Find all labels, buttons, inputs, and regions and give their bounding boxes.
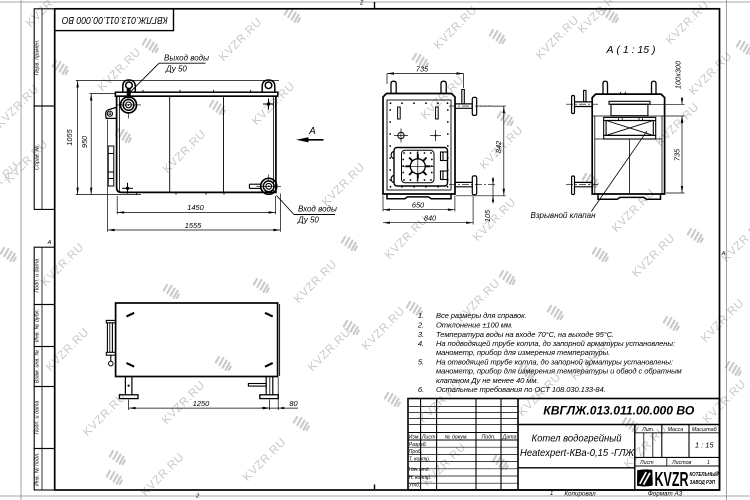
- svg-text:100х300: 100х300: [673, 60, 682, 89]
- svg-text:Справ. №: Справ. №: [35, 145, 41, 170]
- svg-text:KVZR: KVZR: [655, 468, 689, 491]
- svg-text:клапаном Ду не менее 40 мм.: клапаном Ду не менее 40 мм.: [436, 376, 539, 385]
- svg-text:840: 840: [424, 214, 437, 223]
- svg-text:4.: 4.: [418, 339, 424, 348]
- svg-text:На отводящей трубе котла, до з: На отводящей трубе котла, до запорной ар…: [436, 357, 673, 366]
- svg-text:Листов: Листов: [671, 460, 692, 466]
- svg-text:КОТЕЛЬНЫЙ: КОТЕЛЬНЫЙ: [690, 470, 720, 478]
- svg-text:Ду 50: Ду 50: [297, 216, 319, 225]
- svg-text:А ( 1 : 15 ): А ( 1 : 15 ): [605, 44, 655, 56]
- svg-text:735: 735: [416, 64, 429, 73]
- svg-text:Копировал: Копировал: [564, 490, 596, 497]
- svg-text:Утб.: Утб.: [409, 483, 421, 489]
- svg-text:Масштаб: Масштаб: [692, 427, 718, 433]
- svg-text:Подп.: Подп.: [481, 435, 495, 441]
- svg-text:3.: 3.: [418, 330, 424, 339]
- svg-text:Т. контр.: Т. контр.: [409, 457, 431, 463]
- svg-text:КВГЛЖ.013.011.00.000 ВО: КВГЛЖ.013.011.00.000 ВО: [62, 14, 168, 25]
- svg-text:105: 105: [483, 209, 492, 222]
- svg-text:Температура воды на входе 70°С: Температура воды на входе 70°С, на выход…: [436, 330, 614, 339]
- svg-text:Дата: Дата: [502, 435, 517, 441]
- svg-text:Формат А3: Формат А3: [648, 490, 683, 497]
- svg-text:Инв. № дубл.: Инв. № дубл.: [35, 309, 41, 342]
- svg-text:Лит.: Лит.: [641, 427, 654, 433]
- svg-text:Перв. примен.: Перв. примен.: [35, 40, 41, 76]
- svg-text:Лист: Лист: [421, 435, 436, 441]
- svg-text:№ докум.: № докум.: [445, 435, 468, 441]
- svg-text:Изм.: Изм.: [409, 435, 420, 441]
- svg-text:735: 735: [672, 148, 681, 161]
- svg-text:Разраб.: Разраб.: [409, 442, 427, 448]
- svg-text:ЗАВОД РЭП: ЗАВОД РЭП: [690, 480, 716, 486]
- svg-text:КВГЛЖ.013.011.00.000 ВО: КВГЛЖ.013.011.00.000 ВО: [543, 406, 694, 418]
- svg-text:2: 2: [359, 1, 364, 7]
- svg-text:1 : 15: 1 : 15: [695, 441, 714, 450]
- svg-text:А: А: [721, 251, 726, 257]
- svg-text:950: 950: [80, 135, 89, 148]
- svg-text:6.: 6.: [418, 385, 424, 394]
- svg-text:А: А: [47, 240, 52, 246]
- svg-text:1055: 1055: [65, 128, 74, 145]
- svg-text:манометр, прибор для измерения: манометр, прибор для измерения температу…: [436, 367, 683, 376]
- svg-text:Подп. и дата: Подп. и дата: [35, 401, 41, 435]
- svg-text:А: А: [308, 126, 316, 137]
- svg-text:Все размеры для справок.: Все размеры для справок.: [436, 311, 527, 320]
- svg-text:Масса: Масса: [668, 427, 684, 433]
- svg-text:1250: 1250: [193, 399, 210, 408]
- svg-text:80: 80: [289, 399, 298, 408]
- svg-text:1.: 1.: [418, 311, 424, 320]
- svg-text:842: 842: [494, 141, 503, 153]
- svg-text:Проб.: Проб.: [409, 449, 422, 455]
- svg-text:Взрывной клапан: Взрывной клапан: [531, 211, 597, 220]
- svg-text:650: 650: [412, 201, 425, 210]
- svg-text:5.: 5.: [418, 357, 424, 366]
- svg-text:Лист: Лист: [639, 460, 654, 466]
- svg-text:Выход воды: Выход воды: [164, 54, 209, 63]
- svg-text:1555: 1555: [185, 221, 202, 230]
- svg-text:Взам. инв. №: Взам. инв. №: [35, 350, 41, 384]
- svg-text:Ду 50: Ду 50: [165, 65, 187, 74]
- svg-text:Котел водогрейный: Котел водогрейный: [532, 433, 622, 445]
- svg-text:Вход воды: Вход воды: [298, 205, 337, 214]
- svg-text:2.: 2.: [417, 321, 424, 330]
- svg-text:1450: 1450: [187, 203, 204, 212]
- svg-text:Остальные требования по ОСТ 10: Остальные требования по ОСТ 108.030.133-…: [436, 385, 606, 394]
- svg-text:1: 1: [550, 491, 553, 497]
- svg-text:Heatexpert-КВа-0,15 -ГЛЖ: Heatexpert-КВа-0,15 -ГЛЖ: [520, 447, 635, 459]
- svg-text:Н. контр.: Н. контр.: [409, 475, 432, 481]
- svg-text:Отклонение ±100 мм.: Отклонение ±100 мм.: [436, 321, 513, 330]
- svg-text:манометр, прибор для измерения: манометр, прибор для измерения температу…: [436, 348, 610, 357]
- svg-text:Нач.отд.: Нач.отд.: [409, 467, 430, 473]
- svg-text:1: 1: [707, 460, 710, 466]
- svg-text:Подп. и дата: Подп. и дата: [35, 259, 41, 293]
- svg-text:На подводящей трубе котла, до: На подводящей трубе котла, до запорной а…: [436, 339, 675, 348]
- svg-text:Инв. № подл.: Инв. № подл.: [35, 452, 41, 485]
